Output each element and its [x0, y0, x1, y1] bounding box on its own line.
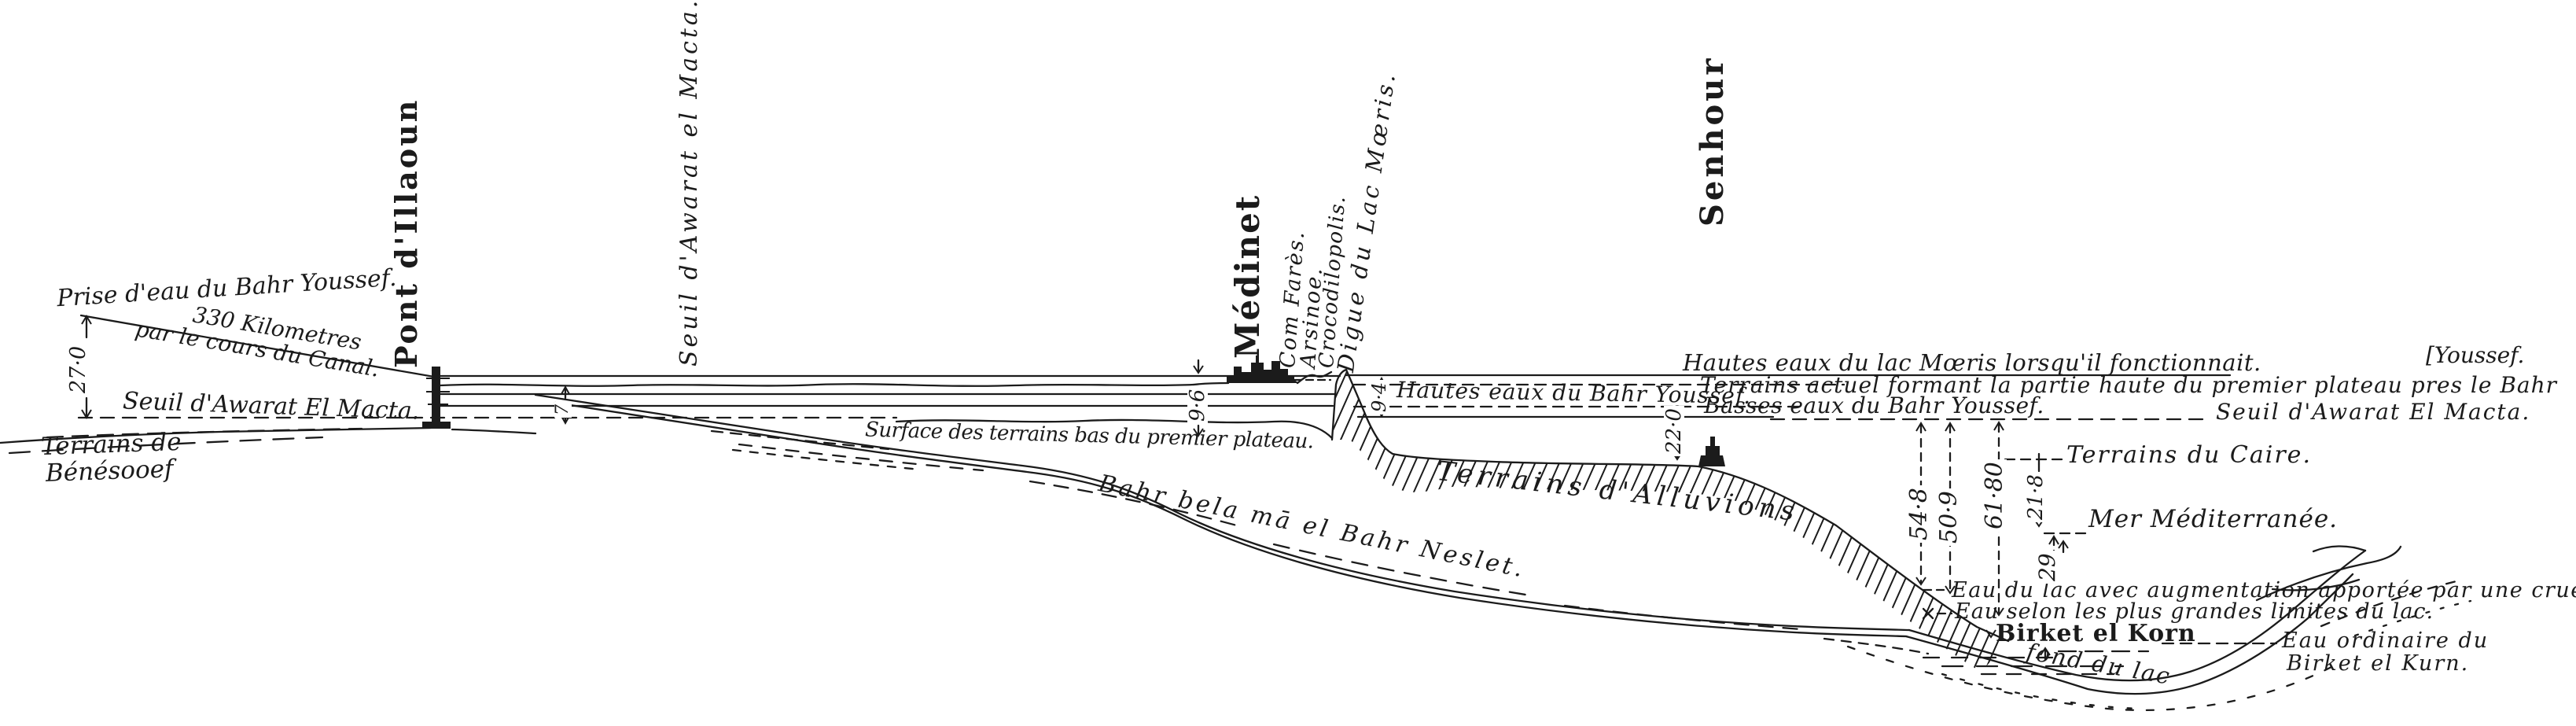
- label-terrains-benesooef-line2: Bénésooef: [46, 457, 174, 486]
- measure-22-0: 22·0: [1664, 406, 1684, 456]
- label-birket-el-korn: Birket el Korn: [1996, 622, 2196, 646]
- measure-7: 7: [554, 402, 572, 418]
- measure-50-9: 50·9: [1938, 488, 1961, 546]
- measure-27-0: 27·0: [68, 344, 89, 396]
- label-basses-eaux-bahr: Basses eaux du Bahr Youssef.: [1704, 395, 2044, 417]
- label-senhour: Senhour: [1697, 56, 1728, 227]
- structures: [422, 356, 1725, 466]
- label-hautes-eaux-lac: Hautes eaux du lac Mœris lorsqu'il fonct…: [1683, 352, 2261, 374]
- label-eau-ordinaire-line1: Eau ordinaire du: [2282, 630, 2489, 651]
- label-mer-mediterranee: Mer Méditerranée.: [2088, 507, 2338, 532]
- label-seuil-macta-right: Seuil d'Awarat El Macta.: [2216, 401, 2530, 423]
- label-eau-limites: Eau selon les plus grandes limites du la…: [1955, 601, 2434, 622]
- measure-9-6: 9·6: [1187, 387, 1208, 424]
- label-seuil-macta-vertical: Seuil d'Awarat el Macta.: [678, 0, 701, 367]
- measure-9-4: 9·4: [1370, 380, 1389, 415]
- measure-29: 29: [2037, 551, 2059, 584]
- measure-21-8: 21·8: [2026, 472, 2046, 522]
- cross-section-engraving: Prise d'eau du Bahr Youssef. 330 Kilomet…: [0, 0, 2576, 726]
- label-eau-ordinaire-line2: Birket el Kurn.: [2287, 653, 2469, 674]
- label-pont-dillaoun: Pont d'Illaoun: [392, 98, 421, 368]
- label-medinet: Médinet: [1231, 194, 1264, 359]
- label-youssef-turnover: [Youssef.: [2426, 345, 2524, 367]
- label-terrains-caire: Terrains du Caire.: [2066, 444, 2312, 467]
- label-hautes-eaux-bahr: Hautes eaux du Bahr Youssef.: [1397, 379, 1752, 407]
- measure-54-8: 54·8: [1908, 485, 1931, 543]
- measure-61-80: 61·80: [1983, 459, 2007, 532]
